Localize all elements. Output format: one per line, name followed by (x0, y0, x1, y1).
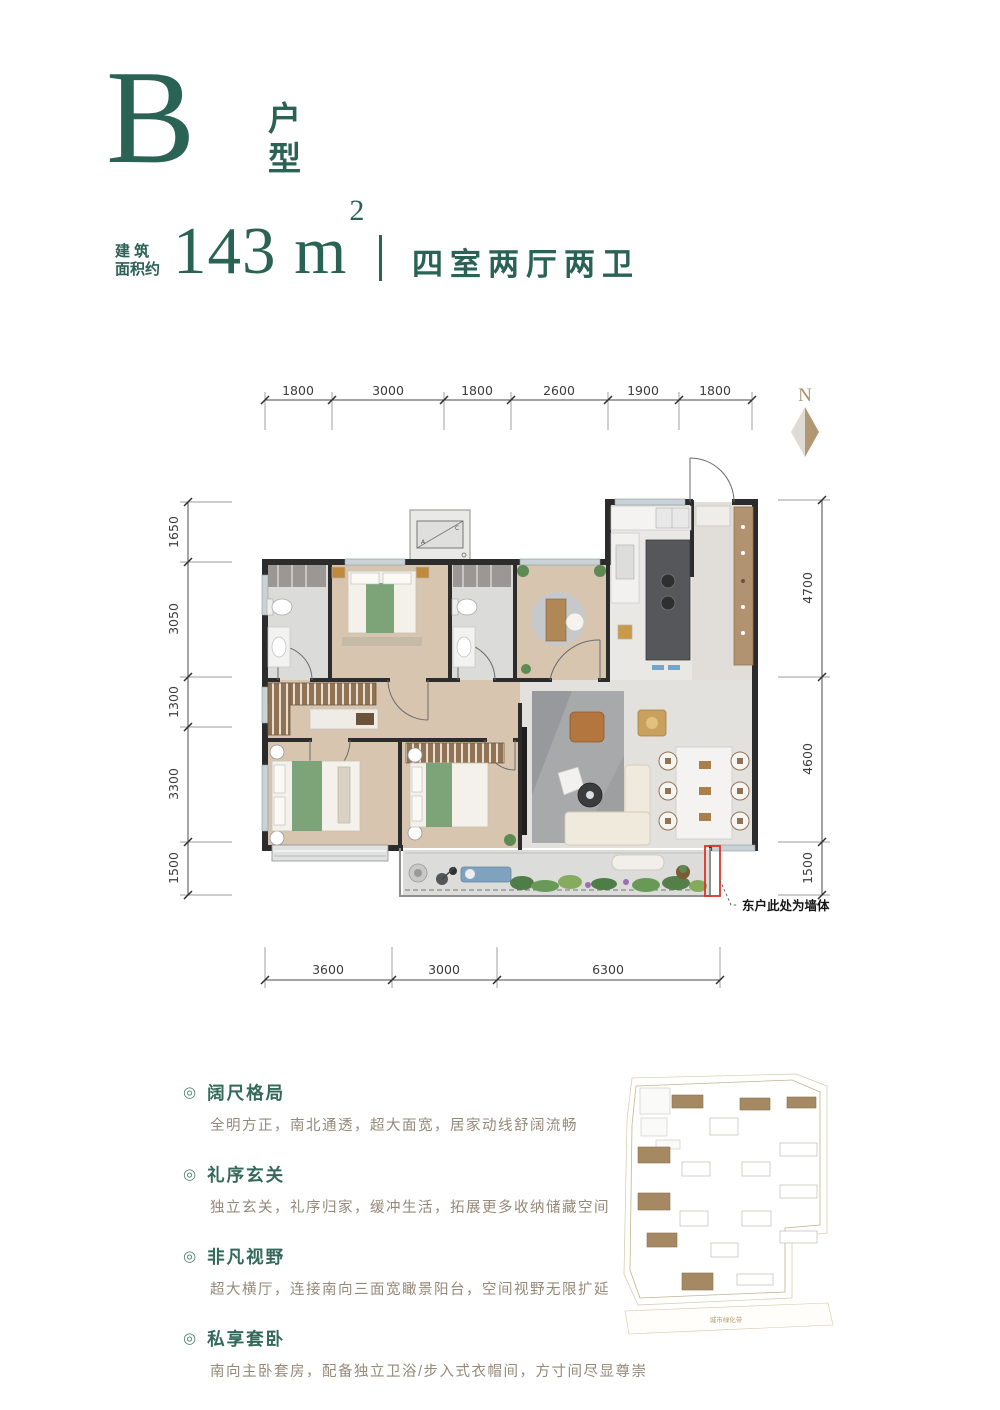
svg-text:1800: 1800 (461, 383, 493, 398)
header-divider (379, 235, 382, 281)
svg-text:1500: 1500 (800, 852, 815, 884)
siteplan-building (742, 1162, 770, 1176)
ring-bullet-icon: ◎ (183, 1085, 196, 1100)
feature-title: 礼序玄关 (207, 1162, 285, 1187)
siteplan-caption: 城市绿化带 (710, 1315, 743, 1324)
svg-text:1800: 1800 (282, 383, 314, 398)
unit-type-label: 户 型 (268, 104, 301, 177)
svg-text:1650: 1650 (166, 516, 181, 548)
area-value: 143 m2 (173, 218, 363, 285)
svg-text:1500: 1500 (166, 852, 181, 884)
dim-right: 4700 4600 1500 (778, 496, 830, 899)
ring-bullet-icon: ◎ (183, 1249, 196, 1264)
svg-text:1800: 1800 (699, 383, 731, 398)
dim-left: 1650 3050 1300 3300 1500 (166, 498, 232, 899)
unit-char-2: 型 (268, 144, 301, 177)
floor-plan-svg: N 1800 3000 1800 2600 1900 1800 (160, 375, 860, 1015)
siteplan-building (787, 1097, 816, 1108)
feature-title: 私享套卧 (207, 1326, 285, 1351)
area-prefix-label: 建 筑 面积约 (115, 243, 160, 279)
layout-text: 四室两厅两卫 (412, 239, 640, 284)
siteplan-building (672, 1095, 703, 1108)
svg-text:3300: 3300 (166, 768, 181, 800)
siteplan-building (740, 1098, 770, 1110)
unit-letter: B (106, 50, 195, 184)
svg-text:C: C (455, 525, 459, 532)
ring-bullet-icon: ◎ (183, 1167, 196, 1182)
svg-text:4700: 4700 (800, 572, 815, 604)
feature-title: 非凡视野 (207, 1244, 285, 1269)
siteplan-building (737, 1274, 773, 1285)
site-plan-svg: 城市绿化带 (620, 1070, 840, 1350)
svg-text:2600: 2600 (543, 383, 575, 398)
siteplan-building (680, 1211, 708, 1226)
siteplan-building (647, 1233, 677, 1247)
feature-title: 阔尺格局 (207, 1080, 285, 1105)
unit-char-1: 户 (268, 104, 301, 137)
svg-text:6300: 6300 (592, 962, 624, 977)
siteplan-building (638, 1193, 670, 1210)
siteplan-building (742, 1211, 771, 1226)
floor-plan: N 1800 3000 1800 2600 1900 1800 (160, 375, 860, 1015)
svg-text:1900: 1900 (627, 383, 659, 398)
dim-top: 1800 3000 1800 2600 1900 1800 (261, 383, 756, 430)
area-exponent: 2 (349, 194, 365, 227)
svg-text:1300: 1300 (166, 686, 181, 718)
svg-text:N: N (798, 385, 812, 406)
siteplan-building (710, 1118, 738, 1135)
siteplan-building (780, 1143, 817, 1156)
svg-text:3000: 3000 (372, 383, 404, 398)
siteplan-building (780, 1231, 817, 1243)
north-arrow-icon: N (791, 385, 819, 457)
svg-text:3600: 3600 (312, 962, 344, 977)
feature-desc: 南向主卧套房，配备独立卫浴/步入式衣帽间，方寸间尽显尊崇 (210, 1360, 723, 1381)
svg-text:3000: 3000 (428, 962, 460, 977)
svg-text:3050: 3050 (166, 603, 181, 635)
svg-text:4600: 4600 (800, 743, 815, 775)
site-plan: 城市绿化带 (620, 1070, 840, 1350)
dim-bottom: 3600 3000 6300 (261, 947, 724, 988)
wall-note: 东户此处为墙体 (742, 898, 830, 913)
siteplan-building (780, 1185, 817, 1198)
siteplan-building (682, 1273, 713, 1290)
siteplan-building (638, 1147, 670, 1163)
ring-bullet-icon: ◎ (183, 1331, 196, 1346)
siteplan-building (711, 1243, 738, 1257)
siteplan-building (682, 1162, 710, 1176)
ac-platform: A C (410, 510, 470, 562)
